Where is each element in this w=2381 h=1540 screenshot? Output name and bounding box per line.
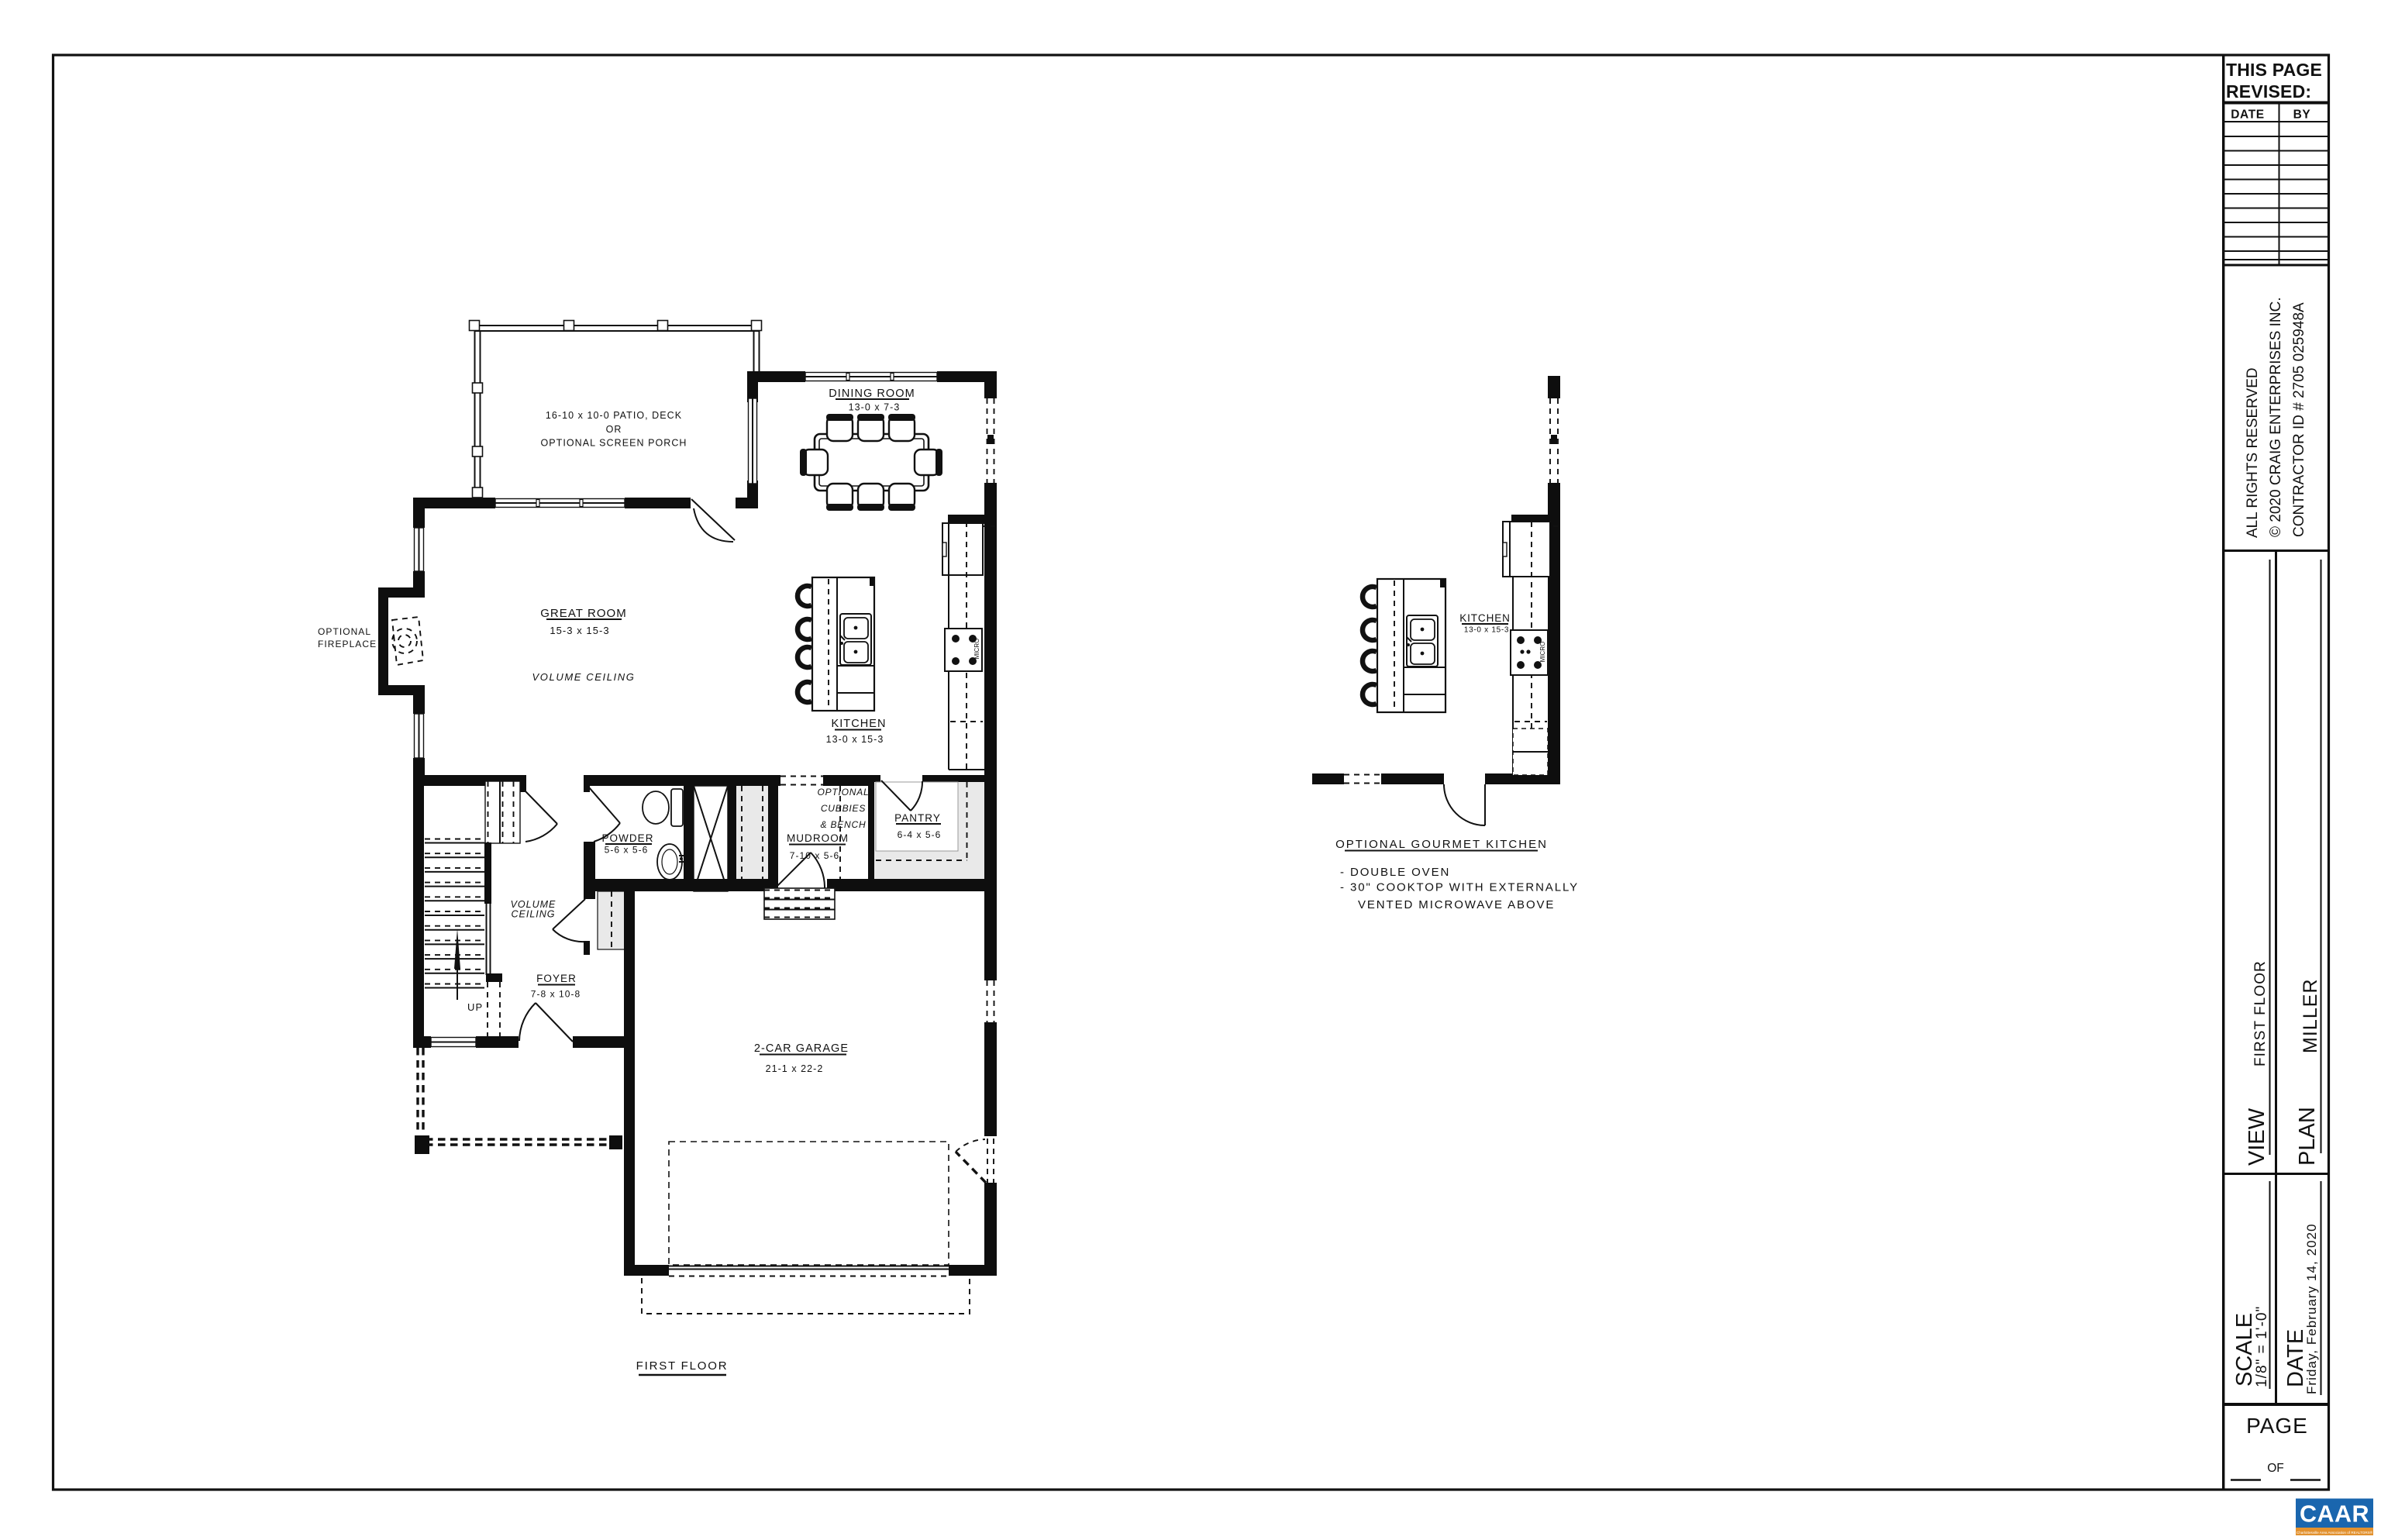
svg-text:21-1 x 22-2: 21-1 x 22-2 (766, 1063, 824, 1074)
svg-text:MICRO: MICRO (973, 639, 980, 660)
svg-text:PANTRY: PANTRY (894, 812, 941, 824)
svg-text:2-CAR GARAGE: 2-CAR GARAGE (754, 1042, 849, 1055)
svg-text:15-3 x 15-3: 15-3 x 15-3 (550, 625, 609, 636)
svg-text:VIEW: VIEW (2245, 1108, 2269, 1166)
svg-text:FOYER: FOYER (536, 973, 577, 984)
svg-text:MILLER: MILLER (2300, 978, 2321, 1053)
svg-text:THIS PAGE: THIS PAGE (2226, 60, 2322, 80)
svg-text:- DOUBLE OVEN: - DOUBLE OVEN (1340, 866, 1450, 879)
svg-text:DINING ROOM: DINING ROOM (829, 388, 915, 400)
svg-text:OPTIONAL: OPTIONAL (318, 626, 371, 637)
svg-text:DATE: DATE (2231, 109, 2264, 122)
svg-text:PLAN: PLAN (2295, 1107, 2320, 1166)
svg-text:FIREPLACE: FIREPLACE (318, 639, 377, 649)
svg-text:MICRO: MICRO (1539, 642, 1546, 663)
svg-text:POWDER: POWDER (601, 832, 653, 844)
svg-text:Charlottesville Area Associati: Charlottesville Area Association of REAL… (2297, 1530, 2373, 1535)
svg-text:CUBBIES: CUBBIES (821, 803, 866, 814)
svg-text:OR: OR (606, 424, 622, 435)
svg-text:7-10 x 5-6: 7-10 x 5-6 (790, 850, 840, 861)
svg-text:CAAR: CAAR (2300, 1501, 2369, 1528)
svg-text:5-6 x 5-6: 5-6 x 5-6 (605, 845, 649, 856)
svg-text:6-4 x 5-6: 6-4 x 5-6 (898, 829, 942, 840)
svg-text:UP: UP (467, 1001, 483, 1013)
svg-text:13-0 x 7-3: 13-0 x 7-3 (849, 402, 901, 413)
svg-text:© 2020 CRAIG ENTERPRISES INC.: © 2020 CRAIG ENTERPRISES INC. (2268, 297, 2284, 537)
svg-text:PAGE: PAGE (2246, 1414, 2308, 1438)
svg-text:OPTIONAL: OPTIONAL (817, 787, 869, 798)
svg-text:VENTED MICROWAVE ABOVE: VENTED MICROWAVE ABOVE (1358, 898, 1555, 911)
svg-text:Friday, February 14, 2020: Friday, February 14, 2020 (2304, 1223, 2319, 1394)
svg-text:OF: OF (2267, 1462, 2284, 1475)
svg-text:16-10 x 10-0 PATIO, DECK: 16-10 x 10-0 PATIO, DECK (546, 410, 682, 421)
svg-text:BY: BY (2293, 109, 2311, 122)
svg-text:FIRST FLOOR: FIRST FLOOR (2252, 960, 2269, 1066)
svg-text:KITCHEN: KITCHEN (832, 718, 887, 730)
svg-text:CONTRACTOR ID # 2705 025948A: CONTRACTOR ID # 2705 025948A (2291, 302, 2307, 537)
svg-text:GREAT ROOM: GREAT ROOM (540, 607, 627, 620)
svg-text:1/8" = 1'-0": 1/8" = 1'-0" (2254, 1306, 2270, 1387)
svg-text:MUDROOM: MUDROOM (787, 832, 849, 844)
svg-text:& BENCH: & BENCH (821, 819, 867, 830)
svg-text:OPTIONAL SCREEN PORCH: OPTIONAL SCREEN PORCH (541, 438, 687, 449)
svg-text:OPTIONAL GOURMET KITCHEN: OPTIONAL GOURMET KITCHEN (1335, 838, 1548, 851)
svg-text:13-0 x 15-3: 13-0 x 15-3 (1464, 626, 1509, 635)
svg-text:FIRST FLOOR: FIRST FLOOR (636, 1359, 729, 1373)
svg-text:CEILING: CEILING (511, 909, 555, 920)
svg-text:13-0 x 15-3: 13-0 x 15-3 (826, 734, 884, 745)
svg-text:- 30" COOKTOP WITH EXTERNALL: - 30" COOKTOP WITH EXTERNALLY (1340, 881, 1579, 894)
svg-text:VOLUME CEILING: VOLUME CEILING (532, 671, 636, 683)
svg-text:REVISED:: REVISED: (2226, 81, 2311, 102)
svg-text:7-8 x 10-8: 7-8 x 10-8 (531, 989, 581, 1000)
svg-text:ALL RIGHTS RESERVED: ALL RIGHTS RESERVED (2245, 367, 2261, 538)
svg-text:KITCHEN: KITCHEN (1459, 612, 1511, 624)
